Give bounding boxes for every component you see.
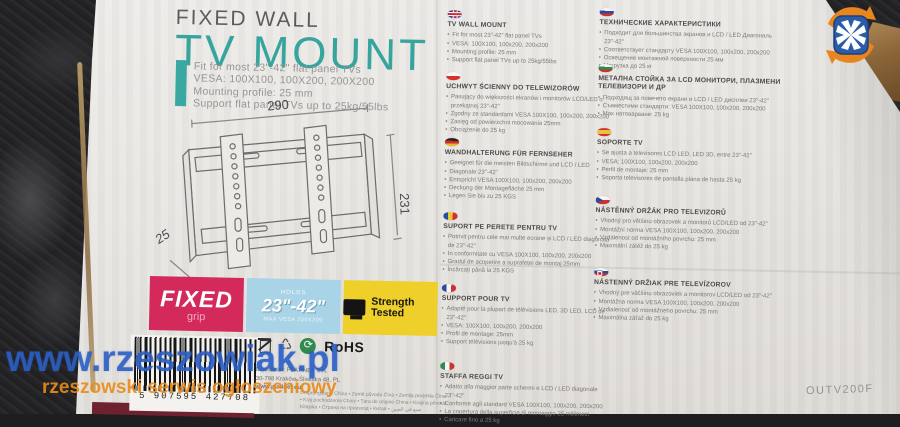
- ro-flag-icon: [443, 212, 457, 220]
- section-heading: SOPORTE TV: [597, 139, 752, 151]
- bg-flag-icon: [598, 64, 612, 72]
- sk-flag-icon: [594, 268, 608, 276]
- section-bulgarian: МЕТАЛНА СТОЙКА ЗА LCD МОНИТОРИ, ПЛАЗМЕНИ…: [598, 64, 789, 122]
- language-column-right: ТЕХНИЧЕСКИЕ ХАРАКТЕРИСТИКИ Подходит для …: [591, 0, 790, 418]
- pl-flag-icon: [446, 72, 460, 80]
- section-bullets: Vhodný pre väčšinu obrazoviek a monitoro…: [593, 289, 772, 325]
- section-bullets: Adatto alla maggior parte schermi e LCD …: [439, 383, 610, 427]
- uk-flag-icon: [448, 10, 462, 18]
- strength-tested-badge: Strength Tested: [343, 280, 438, 336]
- ru-flag-icon: [600, 8, 614, 16]
- language-column-left: TV WALL MOUNT Fit for most 23"-42" flat …: [439, 0, 618, 417]
- fixed-label: FIXED: [160, 285, 233, 314]
- size-value: 23"-42": [262, 295, 326, 317]
- cz-flag-icon: [596, 196, 610, 204]
- section-bullets: Se ajusta a televisores LCD LED, LED 3D,…: [596, 149, 752, 185]
- section-bullets: Adapté pour la plupart de télévisions LE…: [441, 305, 612, 349]
- section-polish: UCHWYT ŚCIENNY DO TELEWIZORÓW Pasujący d…: [445, 72, 616, 137]
- size-bottom-label: MAX VESA 200X200: [263, 316, 322, 323]
- feature-badges: FIXED grip HOLDS 23"-42" MAX VESA 200X20…: [149, 276, 438, 336]
- es-flag-icon: [597, 128, 611, 136]
- mount-diagram-svg: 290 231 25: [146, 92, 420, 288]
- technical-drawing: 290 231 25: [146, 92, 420, 288]
- section-heading: TV WALL MOUNT: [447, 21, 557, 32]
- it-flag-icon: [440, 362, 454, 370]
- de-flag-icon: [445, 138, 459, 146]
- watermark-tagline: rzeszowski serwis ogłoszeniowy: [42, 377, 337, 399]
- dim-width-label: 290: [267, 97, 290, 114]
- dim-depth-label: 25: [151, 226, 173, 247]
- section-italian: STAFFA REGGI TV Adatto alla maggior part…: [439, 362, 610, 427]
- grip-label: grip: [187, 310, 206, 322]
- section-bullets: Vhodný pro většinu obrazovek a monitorů …: [595, 217, 768, 253]
- section-bullets: Pasujący do większości ekranów i monitor…: [445, 93, 616, 137]
- box-crease-vertical: [436, 0, 438, 414]
- model-number: OUTV200F: [806, 383, 874, 397]
- section-romanian: SUPORT PE PERETE PENTRU TV Potrivit pent…: [442, 212, 613, 277]
- section-german: WANDHALTERUNG FÜR FERNSEHER Geeignet für…: [444, 138, 590, 203]
- section-bullets: Potrivit pentru cele mai multe ecrane și…: [442, 233, 613, 277]
- section-bullets: Подходящ за повечето екрани и LCD / LED …: [598, 94, 788, 122]
- photo-of-tv-mount-box: FIXED WALL TV MOUNT Fit for most 23"-42"…: [0, 0, 900, 414]
- section-heading: МЕТАЛНА СТОЙКА ЗА LCD МОНИТОРИ, ПЛАЗМЕНИ…: [598, 75, 788, 96]
- size-range-badge: HOLDS 23"-42" MAX VESA 200X200: [246, 278, 341, 334]
- section-heading: WANDHALTERUNG FÜR FERNSEHER: [445, 149, 590, 161]
- section-bullets: Fit for most 23"-42" flat panel TVs VESA…: [447, 31, 558, 66]
- tv-icon: [343, 299, 365, 315]
- section-czech: NÁSTĚNNÝ DRŽÁK PRO TELEVIZORŮ Vhodný pro…: [595, 196, 768, 253]
- watermark-url: www.rzeszowiak.pl: [6, 338, 340, 380]
- section-bullets: Geeignet für die meisten Bildschirme und…: [444, 159, 590, 202]
- rzeszowiak-logo-icon: [818, 2, 884, 68]
- strength-tested-label: Strength Tested: [371, 297, 438, 320]
- section-slovak: NÁSTENNÝ DRŽIAK PRE TELEVÍZOROV Vhodný p…: [593, 268, 772, 326]
- fixed-grip-badge: FIXED grip: [149, 276, 244, 332]
- section-english: TV WALL MOUNT Fit for most 23"-42" flat …: [447, 10, 558, 66]
- size-top-label: HOLDS: [281, 289, 307, 296]
- section-french: SUPPORT POUR TV Adapté pour la plupart d…: [441, 284, 612, 349]
- fr-flag-icon: [442, 284, 456, 292]
- dim-height-label: 231: [397, 193, 413, 215]
- section-spanish: SOPORTE TV Se ajusta a televisores LCD L…: [596, 128, 752, 185]
